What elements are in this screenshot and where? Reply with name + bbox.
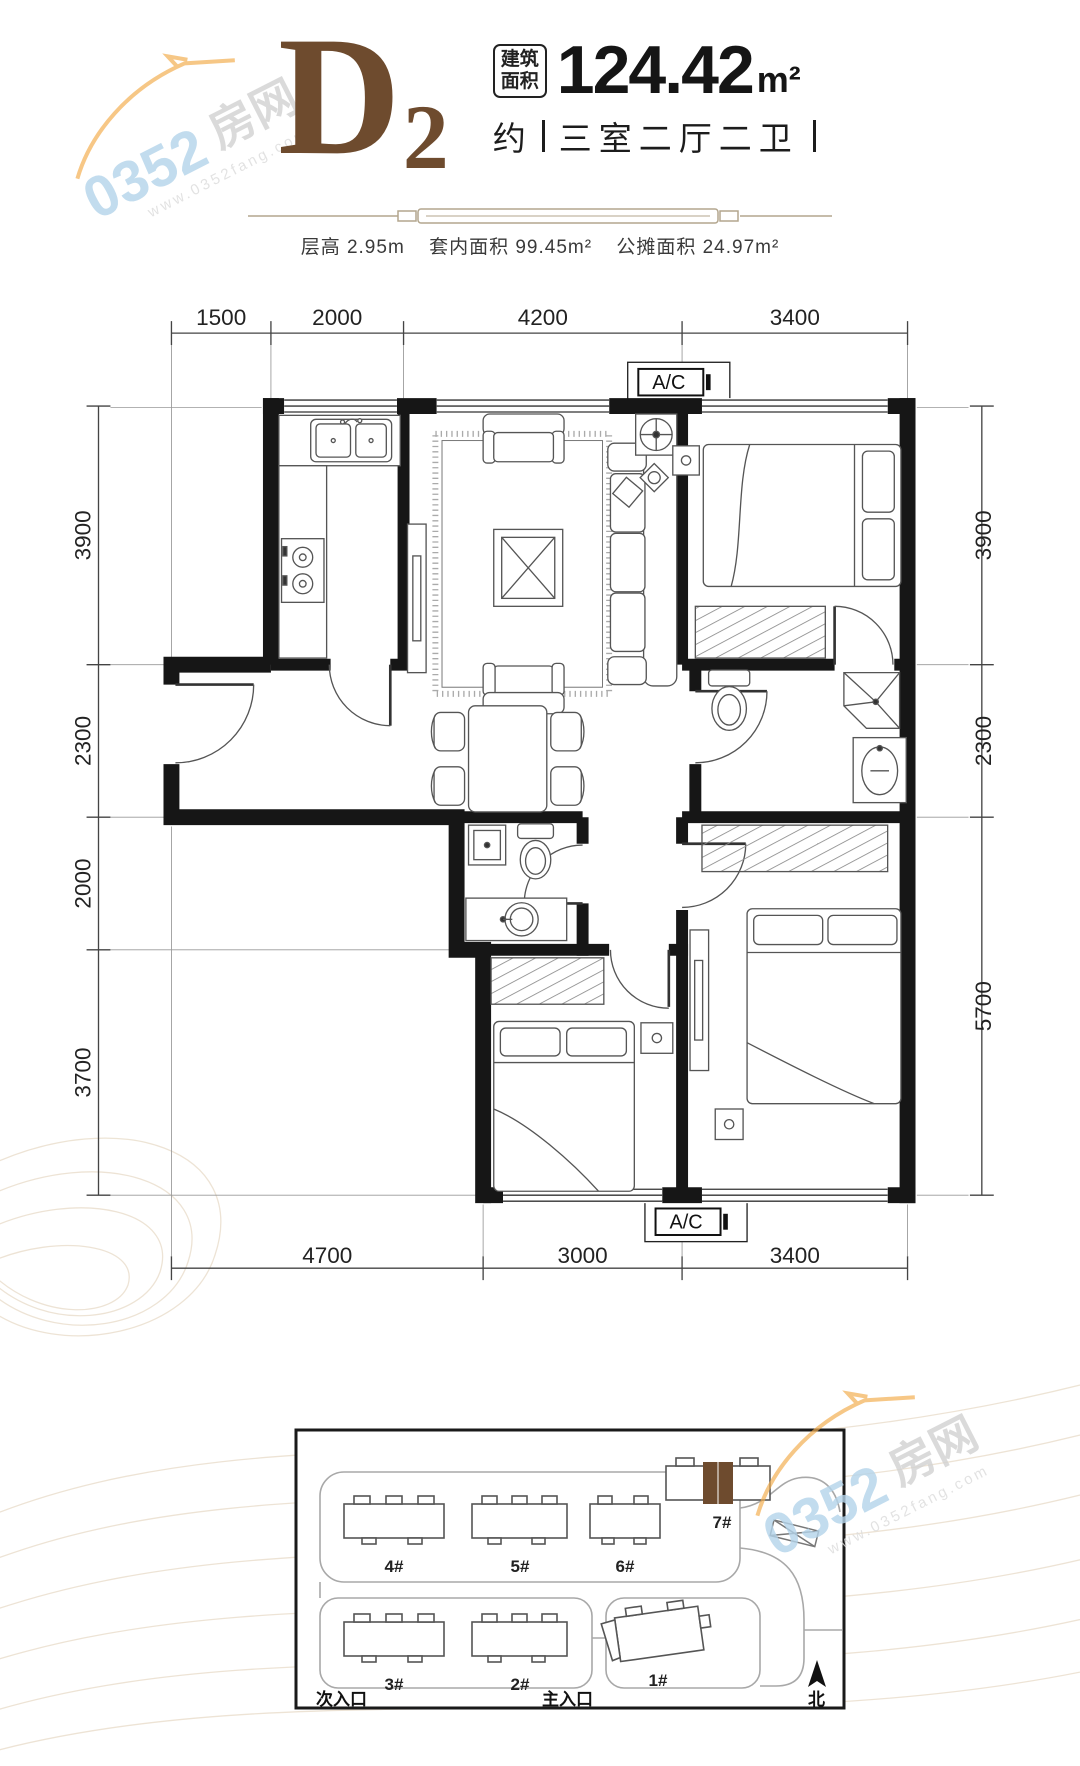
dim-label: 3900 xyxy=(971,510,996,560)
main-entrance-label: 主入口 xyxy=(542,1689,593,1709)
armchair-top xyxy=(483,414,564,463)
bed xyxy=(494,1021,635,1191)
unit-code-letter: D xyxy=(278,26,401,166)
bed xyxy=(747,909,901,1104)
watermark-suffix: 房网 xyxy=(880,1407,986,1495)
wardrobe xyxy=(702,825,888,871)
kitchen-sink-icon xyxy=(311,419,392,462)
building-5 xyxy=(472,1496,567,1544)
spec-floor-height: 层高 2.95m xyxy=(301,237,405,258)
window-living xyxy=(437,398,609,414)
wardrobe xyxy=(695,606,825,658)
dim-label: 2000 xyxy=(71,858,96,908)
bedroom-top xyxy=(673,445,901,659)
tv-cabinet xyxy=(408,524,427,673)
dim-label: 4200 xyxy=(518,305,568,330)
separator-bar xyxy=(813,120,816,152)
nightstand xyxy=(715,1109,743,1140)
dining-chair xyxy=(551,767,584,805)
floor-plan-svg: 1500 2000 4200 3400 3900 2300 2000 3700 … xyxy=(52,290,1027,1298)
spec-line: 层高 2.95m 套内面积 99.45m² 公摊面积 24.97m² xyxy=(0,232,1080,259)
bed xyxy=(703,445,901,587)
dim-label: 2300 xyxy=(71,716,96,766)
dim-label: 2000 xyxy=(312,305,362,330)
building-label: 5# xyxy=(511,1557,530,1576)
fan-unit-icon xyxy=(636,414,677,455)
built-area-unit: m² xyxy=(757,62,801,98)
building-label: 2# xyxy=(511,1675,530,1694)
building-7-highlighted xyxy=(666,1458,770,1504)
watermark-number: 0352 xyxy=(73,116,217,232)
entry-door xyxy=(175,685,253,763)
building-label: 3# xyxy=(385,1675,404,1694)
nightstand xyxy=(673,446,700,475)
dim-label: 4700 xyxy=(302,1243,352,1268)
building-4 xyxy=(344,1496,444,1544)
dim-label: 3700 xyxy=(71,1047,96,1097)
site-plan-svg: 4# 5# 6# 7# 3# 2# 1# 次入口 主入口 北 xyxy=(290,1424,850,1714)
dim-label: 2300 xyxy=(971,716,996,766)
site-plan: 4# 5# 6# 7# 3# 2# 1# 次入口 主入口 北 xyxy=(290,1424,850,1719)
ac-label-top: A/C xyxy=(652,372,685,394)
washing-machine-icon xyxy=(469,825,506,865)
area-type-stamp: 建筑 面积 xyxy=(493,44,547,98)
car-swoosh-icon xyxy=(47,30,251,179)
dining-table xyxy=(469,706,547,812)
toilet-icon xyxy=(518,824,554,879)
dining-chair xyxy=(431,767,464,805)
building-3 xyxy=(344,1614,444,1662)
spec-inner-area: 套内面积 99.45m² xyxy=(429,237,592,258)
bedroom-bottom-left-door xyxy=(610,950,668,1008)
dining-chair xyxy=(431,712,464,750)
built-area-value: 124.42 xyxy=(557,42,753,98)
window-bedroom-bottom-right xyxy=(702,1187,888,1203)
coffee-table xyxy=(494,529,563,606)
stove-icon xyxy=(282,539,324,603)
dim-label: 5700 xyxy=(971,981,996,1031)
dim-label: 3000 xyxy=(558,1243,608,1268)
header-divider xyxy=(248,206,832,231)
furniture xyxy=(279,414,906,1191)
window-kitchen xyxy=(284,398,397,414)
bedroom-bottom-left xyxy=(491,958,673,1191)
building-label: 6# xyxy=(616,1557,635,1576)
header: D 2 建筑 面积 124.42 m² 约 三室二厅二卫 xyxy=(278,26,830,166)
dim-label: 3400 xyxy=(770,1243,820,1268)
building-label: 1# xyxy=(649,1671,668,1690)
secondary-entrance-label: 次入口 xyxy=(316,1689,367,1709)
unit-code-number: 2 xyxy=(403,102,449,172)
toilet-icon xyxy=(709,670,750,730)
bedroom-bottom-right xyxy=(690,825,901,1139)
ac-label-bottom: A/C xyxy=(669,1211,702,1233)
dim-label: 3900 xyxy=(71,510,96,560)
kitchen-door xyxy=(329,665,390,726)
bedroom-top-door xyxy=(835,606,893,664)
area-stamp-line2: 面积 xyxy=(501,71,539,93)
window-bedroom-top xyxy=(702,398,888,414)
building-2 xyxy=(472,1614,567,1662)
building-label: 7# xyxy=(713,1513,732,1532)
dim-label: 1500 xyxy=(196,305,246,330)
kitchen xyxy=(279,415,400,658)
floor-plan: 1500 2000 4200 3400 3900 2300 2000 3700 … xyxy=(52,290,1027,1303)
area-stamp-line1: 建筑 xyxy=(501,49,539,71)
ac-platform-bottom: A/C xyxy=(645,1201,747,1242)
washbasin-icon xyxy=(466,898,567,940)
living-room xyxy=(408,414,677,714)
ac-platform-top: A/C xyxy=(628,362,730,400)
approx-prefix: 约 xyxy=(493,112,528,160)
wardrobe xyxy=(491,958,604,1004)
dining-chair xyxy=(551,712,584,750)
tv-cabinet xyxy=(690,930,709,1071)
dining-area xyxy=(431,706,584,812)
washbasin-icon xyxy=(853,738,906,803)
bathroom-second xyxy=(466,824,567,941)
bathroom-main xyxy=(709,670,907,803)
north-label: 北 xyxy=(808,1690,825,1709)
nightstand xyxy=(641,1023,673,1054)
building-label: 4# xyxy=(385,1557,404,1576)
layout-description: 三室二厅二卫 xyxy=(559,112,799,160)
separator-bar xyxy=(542,120,545,152)
shower-icon xyxy=(844,673,900,729)
dim-label: 3400 xyxy=(770,305,820,330)
spec-shared-area: 公摊面积 24.97m² xyxy=(616,237,779,258)
